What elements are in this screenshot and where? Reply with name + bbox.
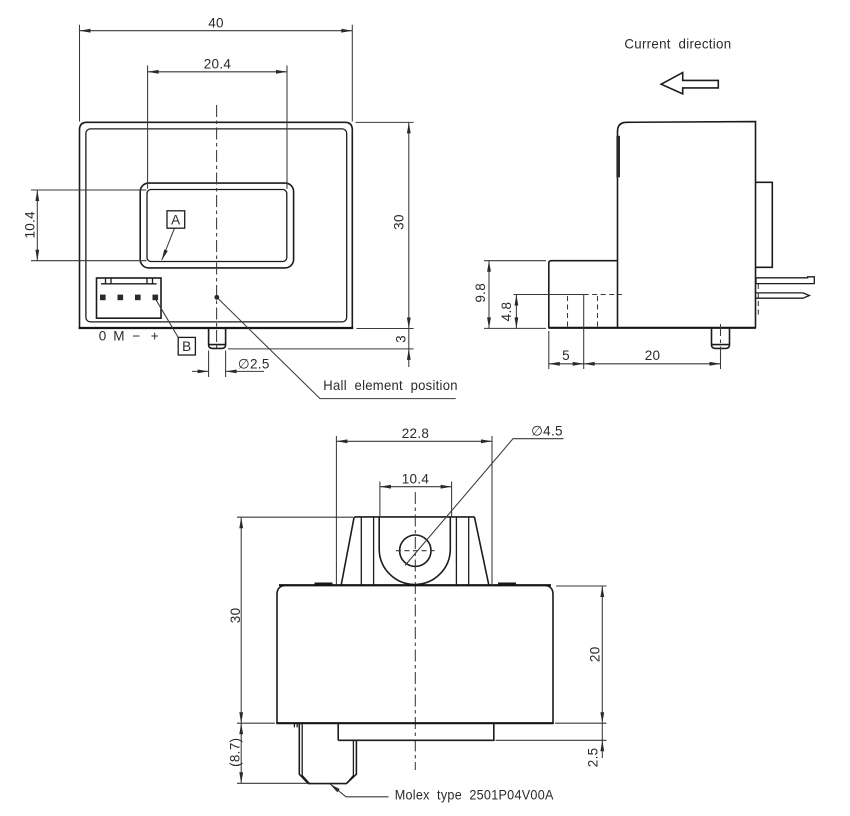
svg-text:−: − (132, 329, 140, 344)
svg-text:Hall element position: Hall element position (323, 377, 458, 393)
svg-text:A: A (171, 212, 180, 227)
svg-text:5: 5 (562, 348, 570, 363)
svg-text:3: 3 (393, 335, 408, 343)
svg-text:20.4: 20.4 (204, 57, 232, 72)
svg-text:∅2.5: ∅2.5 (238, 356, 270, 371)
svg-text:10.4: 10.4 (402, 471, 430, 486)
svg-text:22.8: 22.8 (402, 426, 429, 441)
svg-text:M: M (113, 329, 125, 344)
svg-text:4.8: 4.8 (499, 302, 514, 322)
svg-text:10.4: 10.4 (22, 211, 37, 239)
svg-text:30: 30 (391, 214, 406, 230)
svg-text:20: 20 (587, 646, 602, 662)
svg-text:Current direction: Current direction (624, 35, 731, 51)
svg-text:(8.7): (8.7) (227, 738, 242, 767)
svg-text:40: 40 (208, 15, 224, 30)
svg-text:9.8: 9.8 (473, 283, 488, 303)
svg-text:Molex type 2501P04V00A: Molex type 2501P04V00A (395, 786, 554, 802)
svg-text:2.5: 2.5 (586, 748, 601, 768)
svg-text:0: 0 (99, 329, 107, 344)
svg-text:30: 30 (228, 608, 243, 624)
svg-text:∅4.5: ∅4.5 (531, 424, 563, 439)
svg-text:B: B (182, 339, 191, 354)
svg-text:20: 20 (645, 348, 661, 363)
svg-text:+: + (151, 329, 159, 344)
